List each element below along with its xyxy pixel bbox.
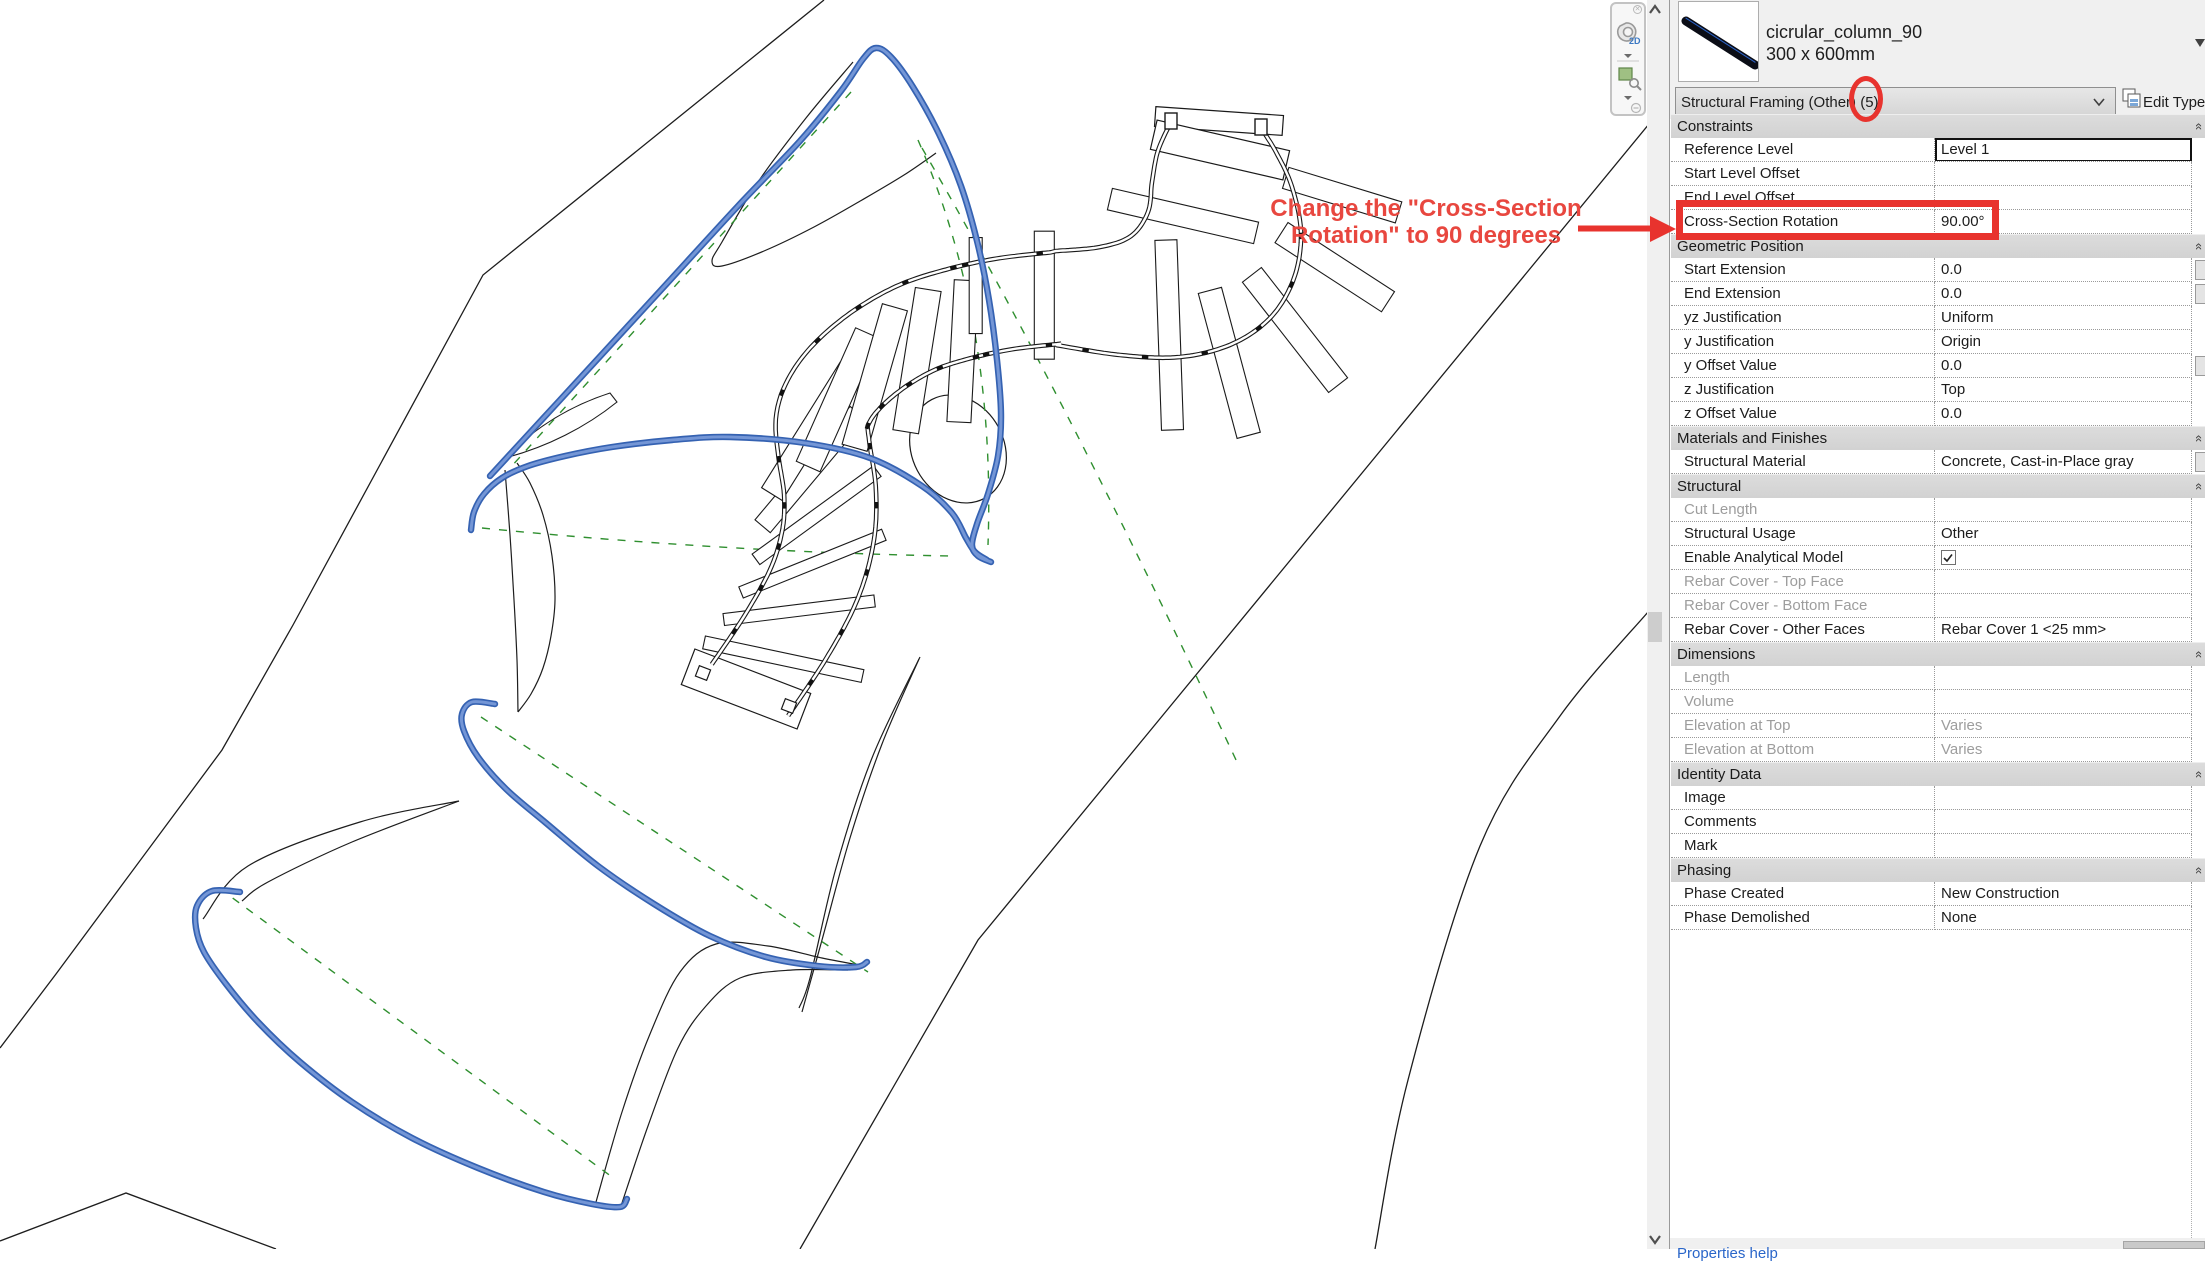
svg-text:2D: 2D	[1629, 36, 1641, 46]
